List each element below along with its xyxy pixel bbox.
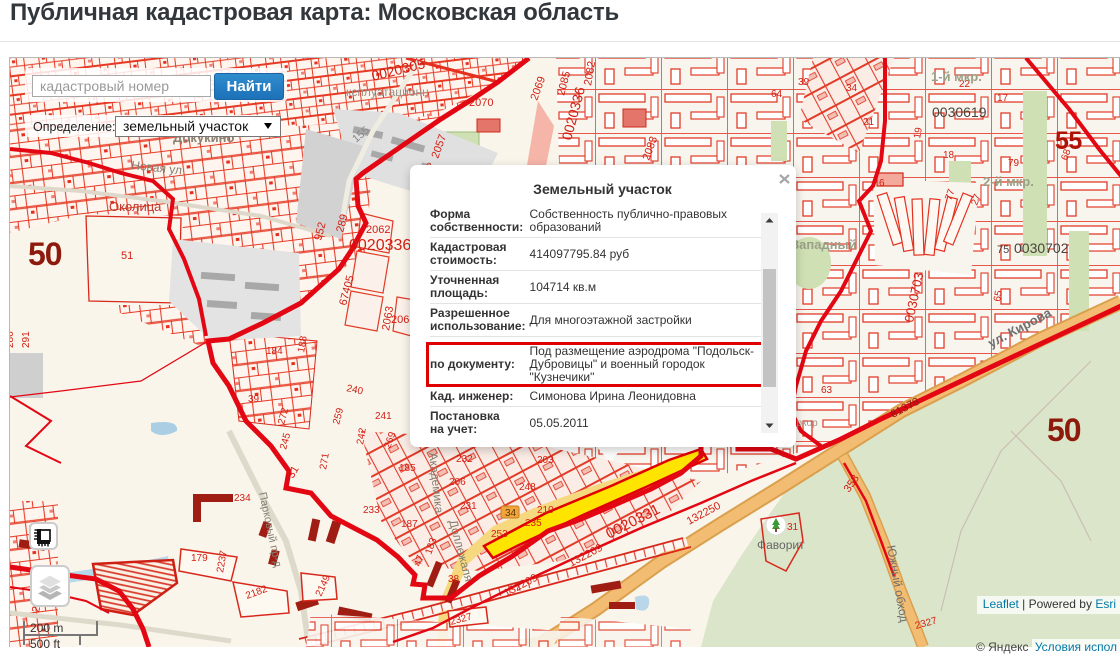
svg-text:233: 233 [363,505,380,516]
svg-text:235: 235 [525,518,542,529]
svg-text:39: 39 [248,394,260,405]
svg-text:38: 38 [448,574,460,585]
svg-text:291: 291 [21,331,32,348]
svg-text:234: 234 [234,493,251,504]
svg-text:231: 231 [460,501,477,512]
svg-text:232: 232 [456,454,473,465]
svg-text:203: 203 [537,455,554,466]
svg-text:1-й мкр.: 1-й мкр. [931,69,982,84]
svg-text:253: 253 [491,529,508,540]
svg-text:2062: 2062 [366,224,390,236]
svg-text:2070: 2070 [469,97,493,109]
svg-text:50: 50 [1047,412,1081,448]
svg-text:21: 21 [863,117,875,128]
svg-text:34: 34 [505,508,517,519]
svg-text:2-й мкр.: 2-й мкр. [983,174,1034,189]
svg-text:0030702: 0030702 [1014,240,1069,256]
svg-text:206: 206 [449,477,466,488]
svg-text:18: 18 [943,150,955,161]
svg-text:0020336: 0020336 [349,237,411,254]
svg-text:31: 31 [787,522,799,533]
svg-text:241: 241 [375,411,392,422]
svg-text:187: 187 [401,519,418,530]
svg-text:63: 63 [821,385,833,396]
svg-text:Западный: Западный [791,237,857,252]
svg-text:ксплуатационн: ксплуатационн [346,85,429,99]
svg-text:50: 50 [28,236,62,272]
svg-text:51: 51 [121,250,133,262]
svg-text:210: 210 [537,505,554,516]
svg-text:184: 184 [266,346,283,357]
svg-text:64: 64 [771,89,783,100]
svg-text:286: 286 [10,331,16,348]
svg-text:75: 75 [997,244,1009,256]
svg-text:34: 34 [846,83,858,94]
svg-text:39: 39 [798,77,810,88]
svg-text:Околица: Околица [109,199,162,214]
svg-text:6: 6 [879,178,885,189]
svg-text:179: 179 [191,553,208,564]
svg-text:17: 17 [997,93,1009,104]
svg-text:0030619: 0030619 [932,104,987,120]
svg-text:185: 185 [399,463,416,474]
svg-text:248: 248 [519,482,536,493]
svg-text:79: 79 [1008,158,1020,169]
